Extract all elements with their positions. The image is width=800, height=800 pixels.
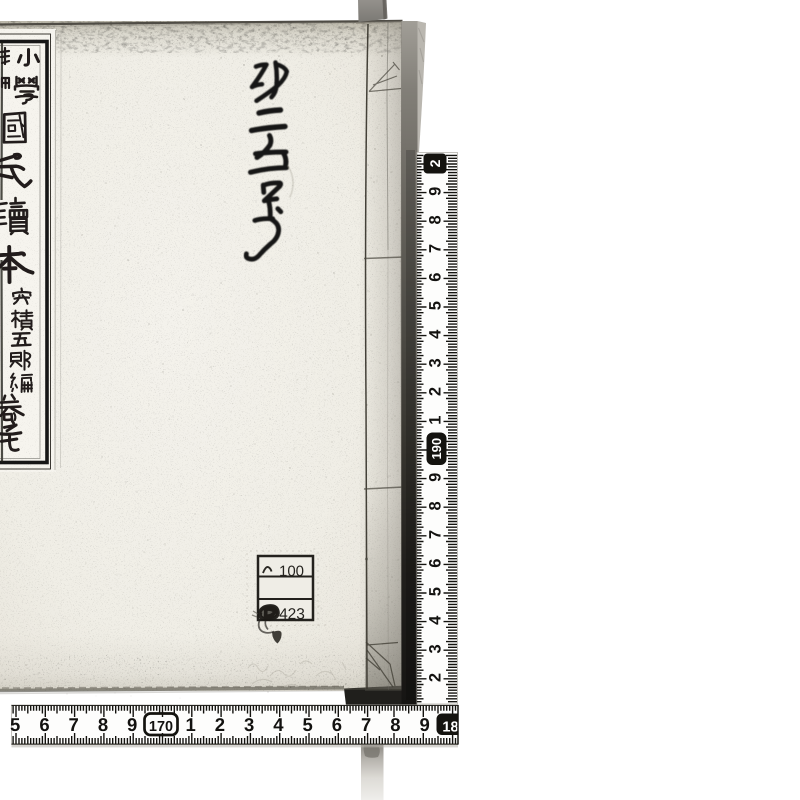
svg-text:9: 9: [427, 473, 445, 482]
svg-text:8: 8: [427, 501, 445, 510]
svg-text:190: 190: [429, 438, 444, 460]
svg-text:6: 6: [427, 559, 445, 568]
svg-text:2: 2: [427, 673, 445, 682]
svg-text:3: 3: [244, 714, 254, 735]
svg-text:9: 9: [420, 714, 430, 735]
svg-text:3: 3: [427, 358, 445, 367]
svg-text:100: 100: [279, 563, 304, 580]
svg-text:9: 9: [427, 187, 445, 196]
svg-text:8: 8: [98, 714, 108, 735]
svg-text:1: 1: [427, 416, 445, 425]
svg-text:423: 423: [279, 606, 305, 623]
svg-text:8: 8: [427, 215, 445, 224]
svg-text:6: 6: [427, 273, 445, 282]
svg-text:18: 18: [442, 720, 458, 736]
svg-text:5: 5: [303, 714, 313, 735]
svg-text:7: 7: [69, 714, 79, 735]
svg-text:1: 1: [186, 714, 196, 735]
svg-text:170: 170: [149, 719, 173, 735]
svg-text:3: 3: [427, 644, 445, 653]
svg-text:4: 4: [427, 615, 445, 625]
svg-text:5: 5: [427, 587, 445, 596]
svg-text:5: 5: [427, 301, 445, 310]
svg-text:5: 5: [10, 714, 20, 735]
svg-text:7: 7: [427, 530, 445, 539]
svg-text:6: 6: [332, 714, 342, 735]
svg-text:9: 9: [127, 714, 137, 735]
svg-text:2: 2: [427, 159, 443, 167]
svg-text:6: 6: [39, 714, 49, 735]
svg-text:4: 4: [427, 329, 445, 339]
svg-text:4: 4: [273, 714, 284, 735]
svg-text:8: 8: [390, 714, 400, 735]
svg-text:2: 2: [427, 387, 445, 396]
svg-text:7: 7: [361, 714, 371, 735]
svg-text:2: 2: [215, 714, 225, 735]
svg-text:7: 7: [427, 244, 445, 253]
